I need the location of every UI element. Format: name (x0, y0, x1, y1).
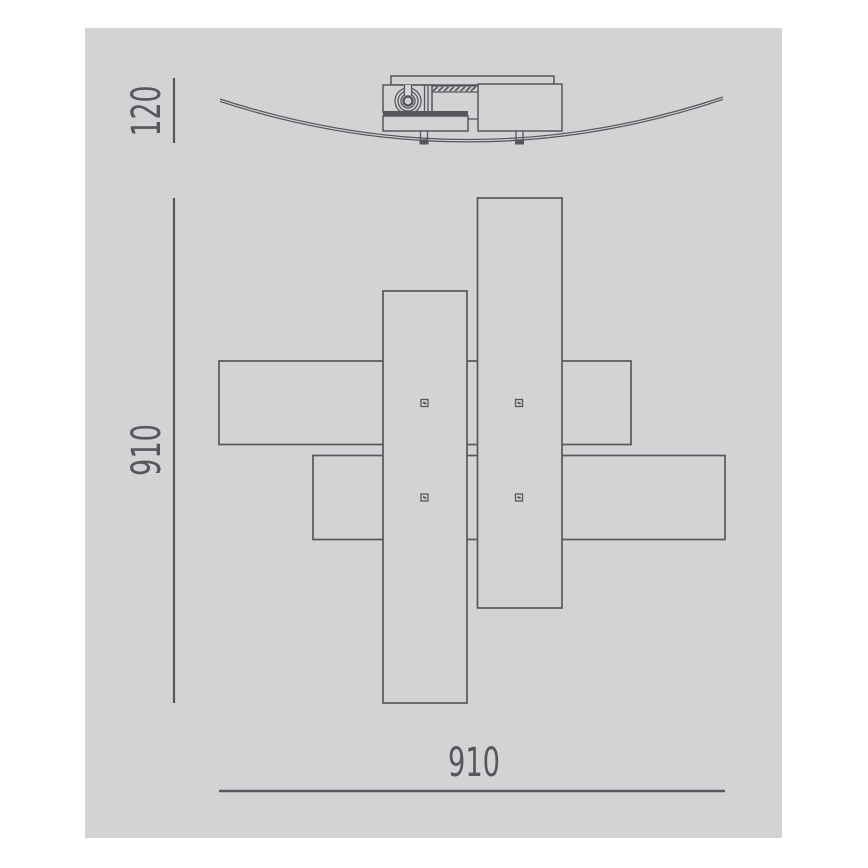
dim-label-fixture-height: 120 (124, 86, 170, 137)
dim-label-plan-width: 910 (448, 740, 500, 786)
hatch-strip (430, 86, 478, 92)
left-housing (383, 116, 468, 131)
dim-label-plan-depth: 910 (124, 424, 170, 476)
side-elevation-view (220, 76, 723, 145)
glass-clip-right-cap (515, 140, 524, 145)
plan-view (219, 198, 725, 703)
glass-clip-right (516, 131, 523, 140)
drawing-canvas: 120 910 910 (85, 28, 782, 838)
glass-clip-left-cap (420, 140, 429, 145)
spec-sheet-page: 120 910 910 (0, 0, 868, 868)
driver-box (478, 84, 562, 131)
technical-drawing: 120 910 910 (85, 28, 782, 838)
